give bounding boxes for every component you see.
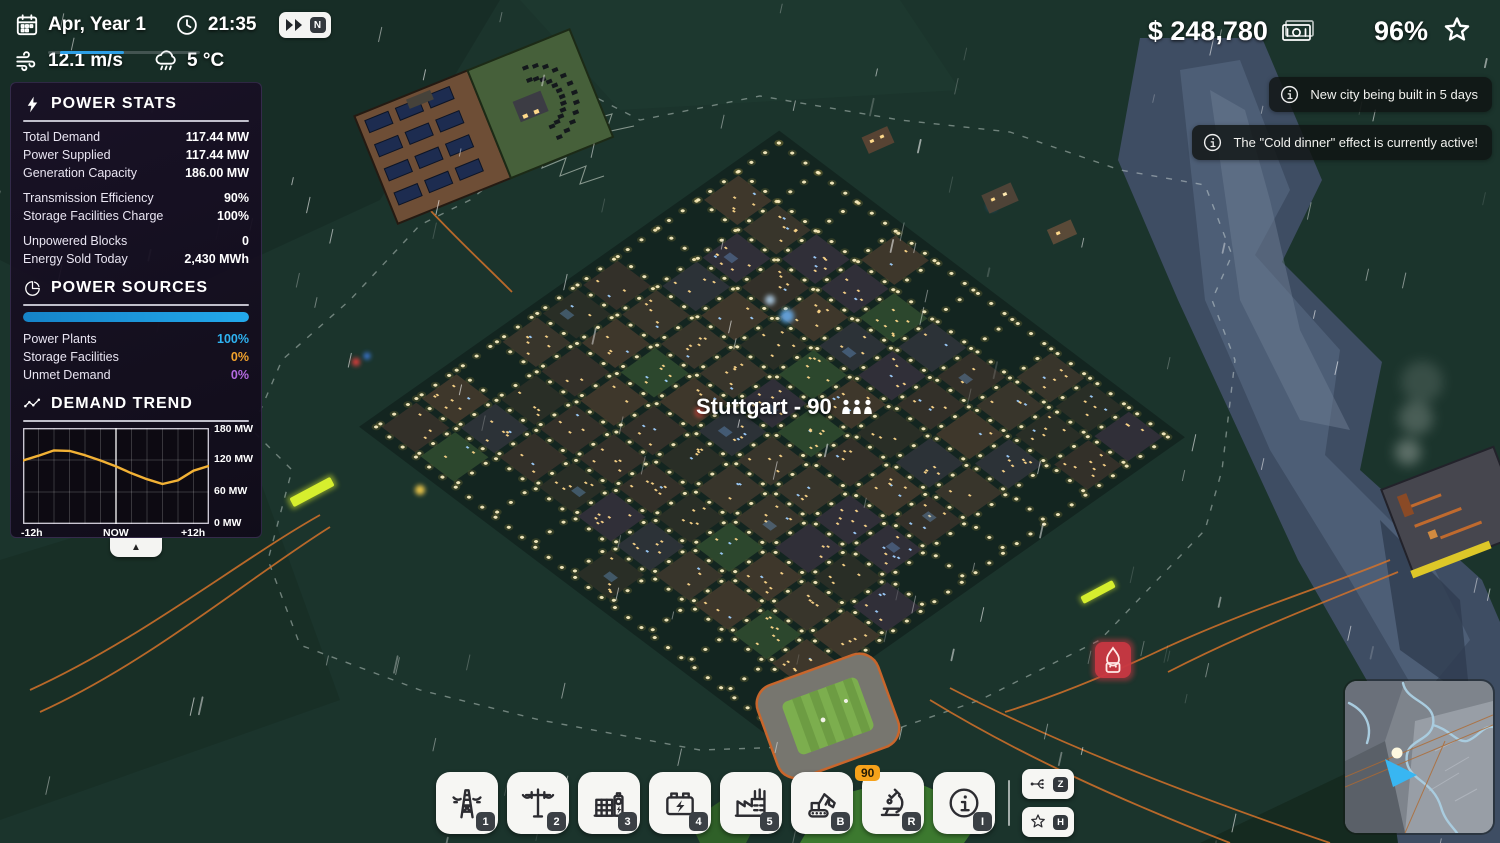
tool-bulldoze[interactable]: B [791,772,853,834]
hotkey-badge: B [831,812,850,831]
power-sources-bar-fill [23,312,249,322]
y-tick: 60 MW [214,485,247,497]
stat-value: 90% [224,191,249,205]
tool-transmission-tower[interactable]: 1 [436,772,498,834]
source-label: Power Plants [23,332,97,346]
resources-hud: $ 248,780 96% [1148,14,1474,48]
build-toolbar: 1 2 3 4 [436,769,1074,837]
date-label: Apr, Year 1 [48,14,146,36]
y-tick: 180 MW [214,423,253,435]
stat-row: Transmission Efficiency90% [23,189,249,207]
section-title: POWER STATS [51,95,177,113]
source-value: 0% [231,350,249,364]
speed-key-badge: N [310,17,326,33]
stat-label: Generation Capacity [23,166,137,180]
hotkey-badge: R [902,812,921,831]
pie-chart-icon [23,279,42,298]
notification-new-city[interactable]: New city being built in 5 days [1269,77,1492,112]
notification-list: New city being built in 5 days The "Cold… [1192,77,1492,160]
population-icon [840,399,876,415]
money-label: $ 248,780 [1148,16,1268,47]
notification-text: The "Cold dinner" effect is currently ac… [1233,135,1478,150]
stat-value: 0 [242,234,249,248]
stat-label: Unpowered Blocks [23,234,127,248]
power-sources-header: POWER SOURCES [23,277,249,299]
panel-collapse-button[interactable]: ▲ [110,538,162,557]
power-warning-icon[interactable] [1092,639,1134,681]
trend-line-icon [23,395,42,414]
toolbar-divider [1008,780,1010,826]
tool-power-pole[interactable]: 2 [507,772,569,834]
wind-icon [14,48,40,74]
x-tick: NOW [103,527,129,538]
power-stats-panel: POWER STATS Total Demand117.44 MW Power … [10,82,262,538]
stat-label: Power Supplied [23,148,111,162]
source-row: Unmet Demand0% [23,366,249,384]
stat-label: Transmission Efficiency [23,191,154,205]
month-progress-bar [48,51,200,54]
source-row: Storage Facilities0% [23,348,249,366]
source-label: Unmet Demand [23,368,111,382]
clock-icon [174,12,200,38]
notification-effect[interactable]: The "Cold dinner" effect is currently ac… [1192,125,1492,160]
tool-research[interactable]: 90 R [862,772,924,834]
stat-label: Energy Sold Today [23,252,128,266]
y-tick: 0 MW [214,517,241,529]
divider [23,120,249,122]
stat-row: Storage Facilities Charge100% [23,207,249,225]
stat-label: Storage Facilities Charge [23,209,163,223]
trend-plot [23,428,209,524]
demand-trend-header: DEMAND TREND [23,393,249,415]
stat-row: Unpowered Blocks0 [23,232,249,250]
stat-row: Power Supplied117.44 MW [23,146,249,164]
research-points-badge: 90 [855,765,880,781]
stat-row: Energy Sold Today2,430 MWh [23,250,249,268]
network-icon [1028,774,1048,794]
source-row: Power Plants100% [23,330,249,348]
money-icon [1280,17,1316,45]
divider [23,420,249,422]
hotkey-badge: Z [1053,777,1068,792]
minimap-city-dot [1392,748,1403,759]
power-stats-header: POWER STATS [23,93,249,115]
source-label: Storage Facilities [23,350,119,364]
game-speed-button[interactable]: N [279,12,331,38]
source-value: 0% [231,368,249,382]
notification-text: New city being built in 5 days [1310,87,1478,102]
section-title: POWER SOURCES [51,279,208,297]
hotkey-badge: 2 [547,812,566,831]
city-name-text: Stuttgart - 90 [696,394,832,420]
clock-weather-hud: Apr, Year 1 21:35 N 12.1 m/s [14,10,331,76]
time-label: 21:35 [208,14,257,36]
fast-forward-icon [284,17,306,33]
stat-row: Total Demand117.44 MW [23,128,249,146]
connections-button[interactable]: Z [1022,769,1074,799]
stat-value: 117.44 MW [186,148,249,162]
tool-battery-storage[interactable]: 4 [649,772,711,834]
tool-power-plant[interactable]: 5 [720,772,782,834]
section-title: DEMAND TREND [51,395,193,413]
stat-value: 186.00 MW [185,166,249,180]
city-name-label[interactable]: Stuttgart - 90 [696,394,876,420]
power-sources-bar [23,312,249,322]
info-icon [1279,84,1300,105]
hotkey-badge: 3 [618,812,637,831]
approval-star-icon[interactable] [1440,14,1474,48]
stat-label: Total Demand [23,130,100,144]
hotkey-badge: H [1053,815,1068,830]
star-icon [1028,812,1048,832]
divider [23,304,249,306]
calendar-icon [14,12,40,38]
approval-label: 96% [1374,16,1428,47]
hotkey-badge: I [973,812,992,831]
demand-trend-chart: 180 MW 120 MW 60 MW 0 MW -12h NOW +12h [23,428,249,538]
game-screen: Stuttgart - 90 Apr, Year 1 21:35 [0,0,1500,843]
hotkey-badge: 1 [476,812,495,831]
tool-info-mode[interactable]: I [933,772,995,834]
info-icon [1202,132,1223,153]
hotkey-badge: 4 [689,812,708,831]
y-tick: 120 MW [214,453,253,465]
minimap[interactable] [1345,681,1493,833]
tool-substation[interactable]: 3 [578,772,640,834]
toolbar-side-buttons: Z H [1022,769,1074,837]
lightning-icon [23,95,42,114]
source-value: 100% [217,332,249,346]
stat-value: 2,430 MWh [184,252,249,266]
achievements-button[interactable]: H [1022,807,1074,837]
stat-value: 100% [217,209,249,223]
stat-row: Generation Capacity186.00 MW [23,164,249,182]
stat-value: 117.44 MW [186,130,249,144]
x-tick: -12h [21,527,43,538]
x-tick: +12h [181,527,205,538]
hotkey-badge: 5 [760,812,779,831]
